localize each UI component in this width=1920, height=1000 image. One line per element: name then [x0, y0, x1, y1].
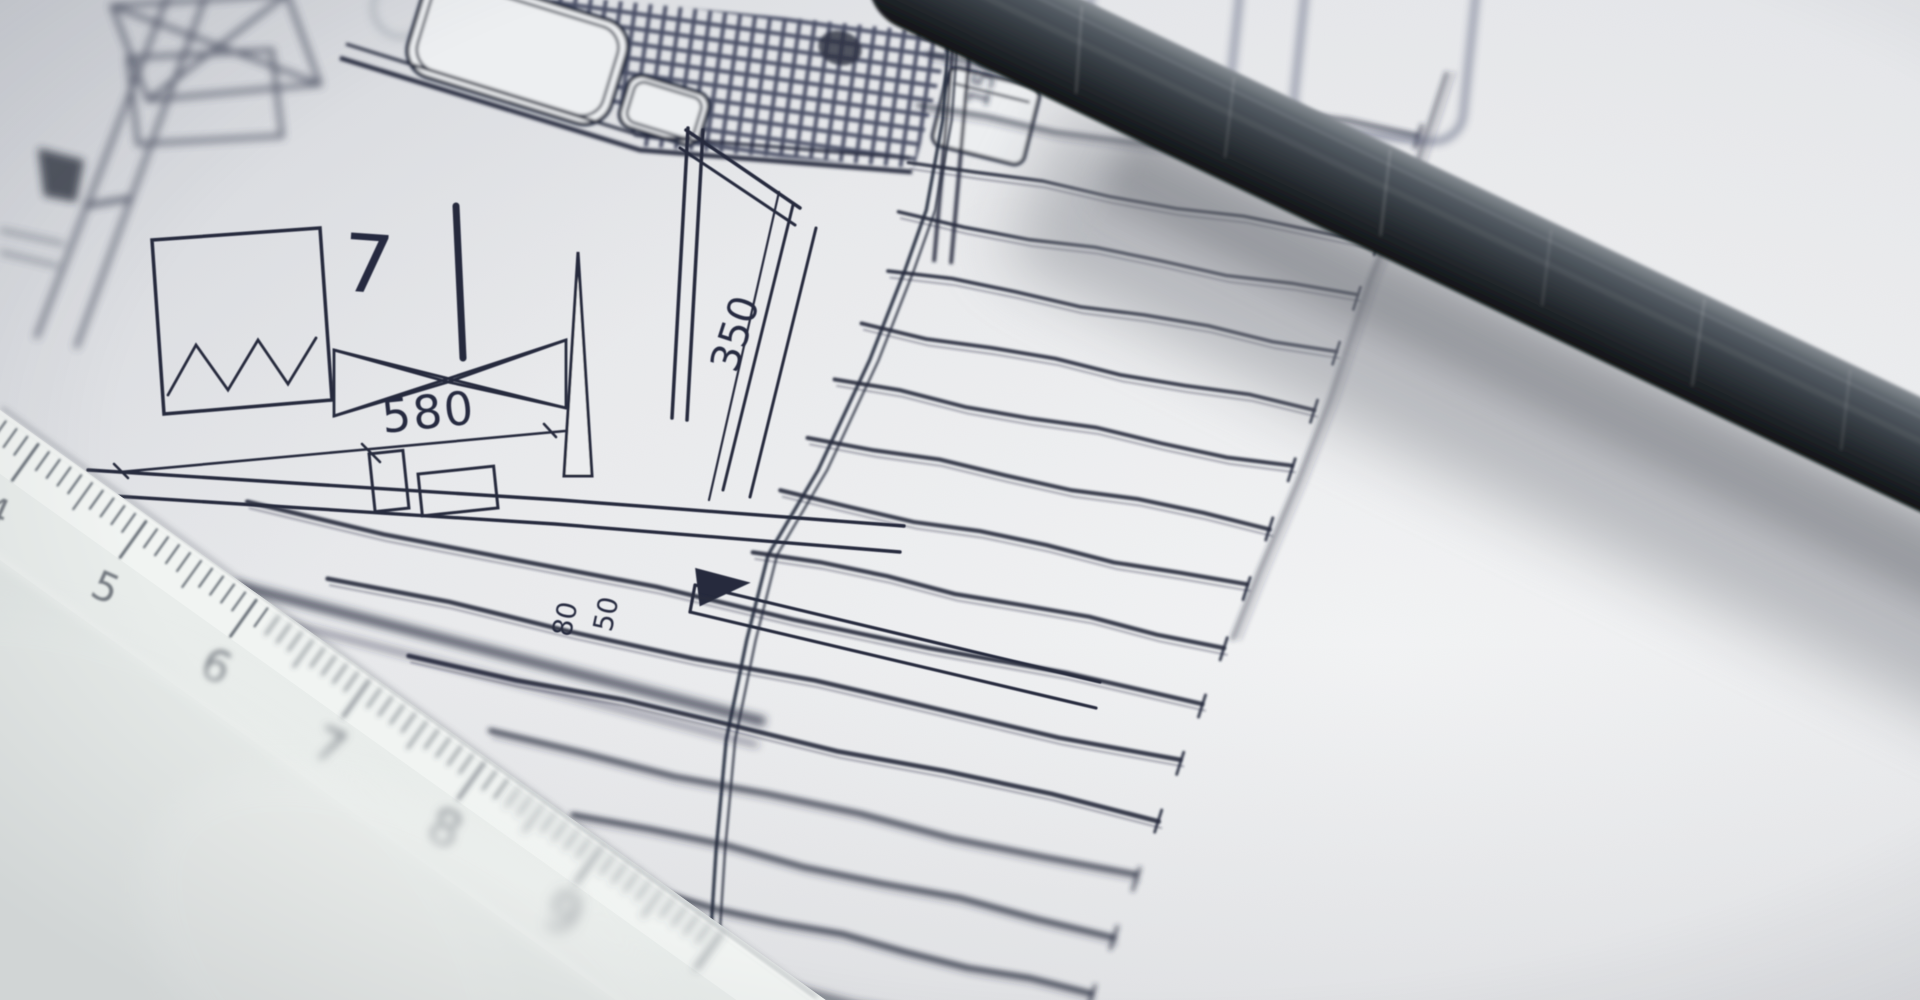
photo-blueprint-scene: 7 580 350 80 50 150	[0, 0, 1920, 1000]
vignette	[0, 0, 1920, 1000]
